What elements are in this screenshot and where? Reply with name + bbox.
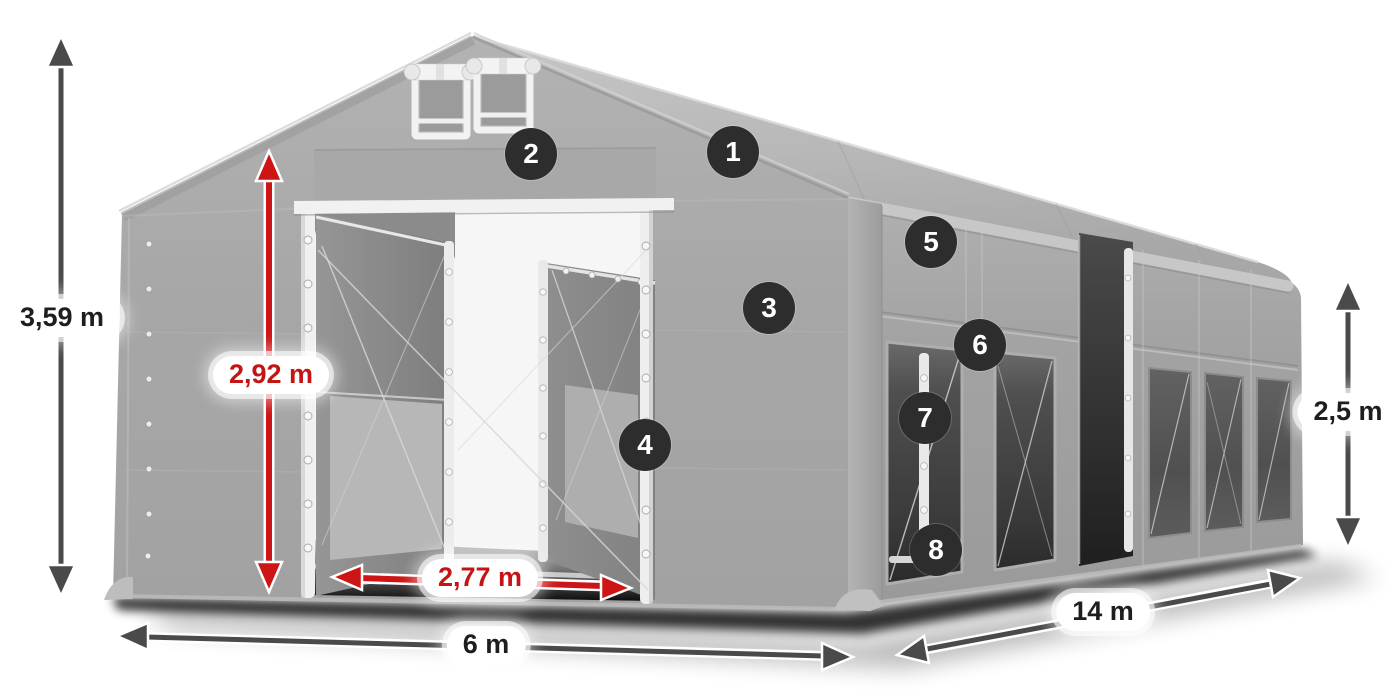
left-door-leaf: [316, 214, 454, 596]
total-height-label: 3,59 m: [4, 299, 120, 337]
side-opening-2: [995, 352, 1055, 570]
front-width-label: 6 m: [447, 626, 526, 664]
tent-illustration: [0, 0, 1400, 700]
tent-dimensions-figure: 1 2 3 4 5 6 7 8 3,59 m 2,92 m 2,77 m 6 m…: [0, 0, 1400, 700]
entrance-opening: [294, 147, 674, 604]
roof-vent-left: [404, 64, 478, 136]
callout-badge-3[interactable]: 3: [743, 282, 795, 334]
side-window-2: [1205, 373, 1243, 531]
callout-badge-7[interactable]: 7: [899, 392, 951, 444]
corner-post: [848, 198, 882, 608]
side-window-1: [1149, 368, 1191, 538]
entrance-beam: [314, 147, 656, 204]
entrance-width-label: 2,77 m: [422, 559, 538, 597]
callout-badge-1[interactable]: 1: [707, 126, 759, 178]
door-window: [330, 396, 442, 560]
roof-vent-right: [466, 58, 541, 130]
side-height-label: 2,5 m: [1297, 393, 1398, 431]
side-length-label: 14 m: [1056, 593, 1150, 631]
callout-badge-5[interactable]: 5: [905, 216, 957, 268]
side-window-3: [1257, 378, 1291, 522]
callout-badge-8[interactable]: 8: [910, 524, 962, 576]
side-sliding-opening: [1079, 233, 1133, 566]
callout-badge-6[interactable]: 6: [954, 319, 1006, 371]
entrance-left-pole: [301, 206, 315, 598]
entrance-height-label: 2,92 m: [213, 356, 329, 394]
callout-badge-2[interactable]: 2: [505, 128, 557, 180]
entrance-right-pole: [640, 209, 653, 604]
callout-badge-4[interactable]: 4: [619, 419, 671, 471]
